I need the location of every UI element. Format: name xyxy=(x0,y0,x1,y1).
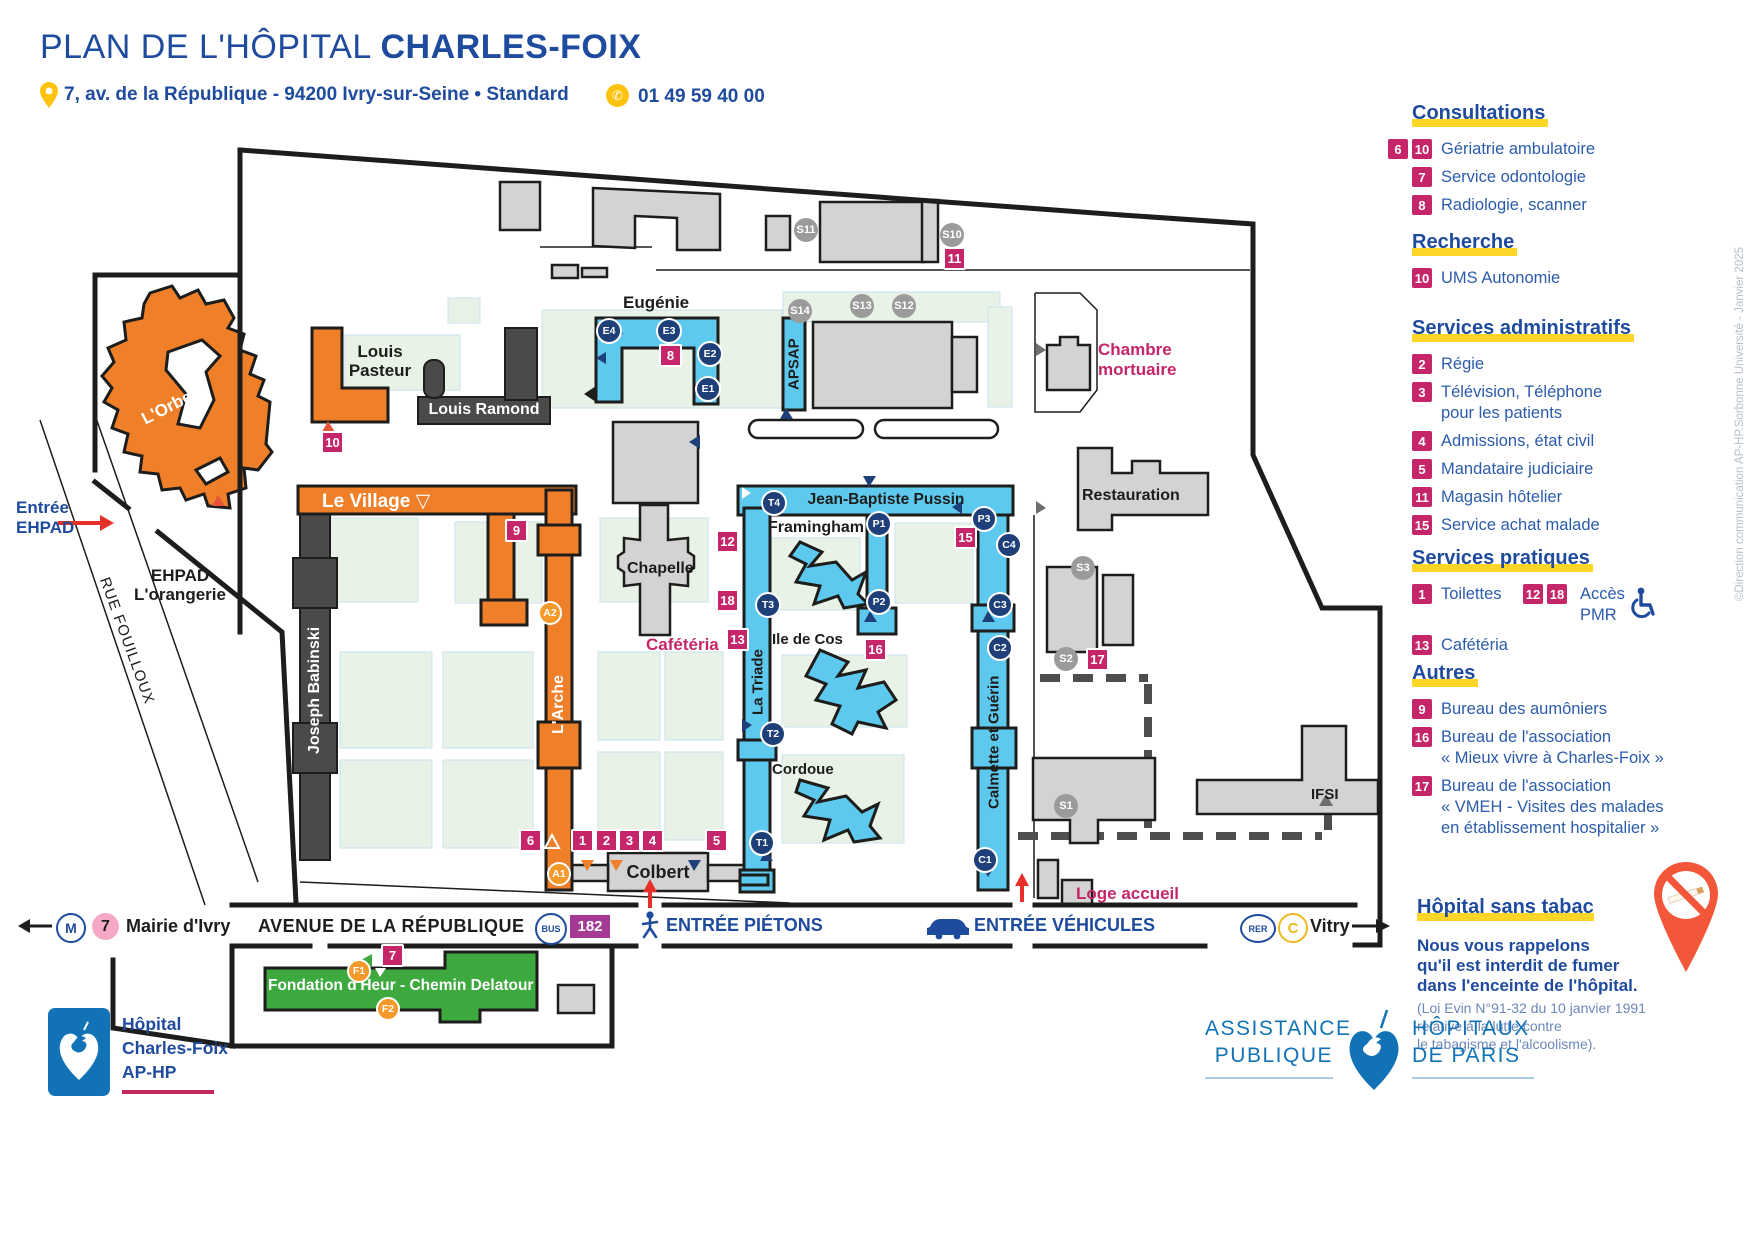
map-badge-2: 2 xyxy=(595,829,618,852)
label-mairie-divry: Mairie d'Ivry xyxy=(126,916,230,937)
label-restauration: Restauration xyxy=(1082,487,1180,505)
label-line: mortuaire xyxy=(1098,360,1176,380)
map-badge-9: 9 xyxy=(505,519,528,542)
chambre-mortuaire-building xyxy=(1047,337,1090,390)
marker-a1: A1 xyxy=(547,862,571,886)
logo-text-line: HÔPITAUX xyxy=(1412,1015,1534,1042)
marker-s12: S12 xyxy=(892,294,916,318)
s1-building xyxy=(1033,758,1155,843)
rer-icon: RER xyxy=(1240,914,1276,943)
building-pussin-north xyxy=(813,322,952,408)
heart-bird-icon xyxy=(48,1008,110,1096)
map-badge-3: 3 xyxy=(618,829,641,852)
logo-text-line: DE PARIS xyxy=(1412,1042,1534,1069)
bus-icon: BUS xyxy=(535,913,567,945)
aphp-logo-text-right: HÔPITAUX DE PARIS xyxy=(1412,1015,1534,1079)
label-avenue: AVENUE DE LA RÉPUBLIQUE xyxy=(258,916,525,937)
car-icon xyxy=(927,919,969,939)
label-loge-accueil: Loge accueil xyxy=(1076,884,1179,904)
marker-c3: C3 xyxy=(987,592,1013,618)
label-eugenie: Eugénie xyxy=(623,293,689,313)
marker-s11: S11 xyxy=(794,218,818,242)
map-badge-6: 6 xyxy=(519,829,542,852)
map-badge-5: 5 xyxy=(705,829,728,852)
pedestrian-icon xyxy=(643,911,657,937)
building-north-west xyxy=(593,188,720,250)
map-badge-17: 17 xyxy=(1086,648,1109,671)
bus-line-182-badge: 182 xyxy=(570,915,610,938)
marker-p1: P1 xyxy=(866,511,892,537)
label-vitry: Vitry xyxy=(1310,916,1350,937)
label-ile-de-cos: Ile de Cos xyxy=(772,631,843,648)
label-joseph-babinski: Joseph Babinski xyxy=(300,565,330,815)
marker-s13: S13 xyxy=(850,294,874,318)
marker-t1: T1 xyxy=(749,830,775,856)
label-chapelle: Chapelle xyxy=(627,560,694,578)
marker-f2: F2 xyxy=(376,997,400,1021)
label-arche: L'Arche xyxy=(546,630,572,780)
rer-line-c-icon: C xyxy=(1278,913,1308,943)
label-entree-ehpad: Entrée EHPAD xyxy=(16,498,74,538)
marker-c2: C2 xyxy=(987,635,1013,661)
hospital-map-poster: PLAN DE L'HÔPITAL CHARLES-FOIX 7, av. de… xyxy=(0,0,1754,1241)
label-chambre-mortuaire: Chambre mortuaire xyxy=(1098,340,1176,380)
metro-line-7-icon: 7 xyxy=(92,913,119,940)
map-badge-13: 13 xyxy=(726,628,749,651)
map-badge-1: 1 xyxy=(571,829,594,852)
marker-s2: S2 xyxy=(1054,647,1078,671)
label-text: Le Village xyxy=(322,491,410,512)
marker-p3: P3 xyxy=(971,506,997,532)
map-badge-16: 16 xyxy=(864,638,887,661)
aphp-logo-text-left: ASSISTANCE PUBLIQUE xyxy=(1205,1015,1333,1079)
label-framingham: Framingham xyxy=(768,519,864,537)
logo-text-line: Hôpital xyxy=(122,1012,228,1036)
marker-a2: A2 xyxy=(538,601,562,625)
marker-t4: T4 xyxy=(761,490,787,516)
label-le-village: Le Village xyxy=(322,490,430,513)
marker-s10: S10 xyxy=(940,223,964,247)
map-badge-11: 11 xyxy=(943,247,966,270)
metro-icon: M xyxy=(56,913,86,943)
ifsi-building xyxy=(1197,726,1378,814)
marker-s14: S14 xyxy=(788,299,812,323)
marker-s3: S3 xyxy=(1071,556,1095,580)
map-badge-4: 4 xyxy=(641,829,664,852)
label-cafeteria: Cafétéria xyxy=(646,635,719,655)
map-badge-7: 7 xyxy=(381,944,404,967)
label-pussin: Jean-Baptiste Pussin xyxy=(800,491,972,509)
map-badge-12: 12 xyxy=(716,530,739,553)
label-line: L'orangerie xyxy=(125,585,235,604)
marker-e1: E1 xyxy=(695,376,721,402)
map-badge-18: 18 xyxy=(716,589,739,612)
map-badge-8: 8 xyxy=(659,344,682,367)
label-line: Chambre xyxy=(1098,340,1176,360)
label-louis-ramond: Louis Ramond xyxy=(420,401,548,419)
label-apsap: APSAP xyxy=(783,322,805,407)
label-entree-vehicules: ENTRÉE VÉHICULES xyxy=(974,915,1155,936)
marker-f1: F1 xyxy=(347,959,371,983)
marker-p2: P2 xyxy=(866,589,892,615)
label-ehpad-orangerie: EHPAD L'orangerie xyxy=(125,566,235,604)
label-entree-pietons: ENTRÉE PIÉTONS xyxy=(666,915,823,936)
label-line: Pasteur xyxy=(342,361,418,380)
marker-e3: E3 xyxy=(656,318,682,344)
marker-c4: C4 xyxy=(996,532,1022,558)
label-line: Entrée xyxy=(16,498,74,518)
label-calmette: Calmette et Guérin xyxy=(980,672,1008,812)
logo-text-line: AP-HP xyxy=(122,1060,228,1084)
marker-e2: E2 xyxy=(697,341,723,367)
label-cordoue: Cordoue xyxy=(772,761,834,778)
label-line: EHPAD xyxy=(16,518,74,538)
label-triade: La Triade xyxy=(746,645,770,720)
aphp-heart-icon xyxy=(1341,1002,1407,1094)
label-line: EHPAD xyxy=(125,566,235,585)
map-badge-10: 10 xyxy=(321,431,344,454)
charles-foix-logo xyxy=(48,1008,110,1096)
logo-text-line: Charles-Foix xyxy=(122,1036,228,1060)
label-louis-pasteur: Louis Pasteur xyxy=(342,342,418,380)
label-line: Louis xyxy=(342,342,418,361)
map-badge-15: 15 xyxy=(954,526,977,549)
marker-e4: E4 xyxy=(596,318,622,344)
charles-foix-logo-text: Hôpital Charles-Foix AP-HP xyxy=(122,1012,228,1084)
marker-s1: S1 xyxy=(1054,794,1078,818)
logo-text-line: PUBLIQUE xyxy=(1205,1042,1333,1069)
label-colbert: Colbert xyxy=(608,862,708,883)
label-fondation: Fondation d'Heur - Chemin Delatour xyxy=(268,977,532,995)
marker-t3: T3 xyxy=(755,592,781,618)
marker-t2: T2 xyxy=(760,721,786,747)
logo-underline xyxy=(122,1090,214,1094)
logo-text-line: ASSISTANCE xyxy=(1205,1015,1333,1042)
marker-c1: C1 xyxy=(972,847,998,873)
label-ifsi: IFSI xyxy=(1311,786,1339,803)
